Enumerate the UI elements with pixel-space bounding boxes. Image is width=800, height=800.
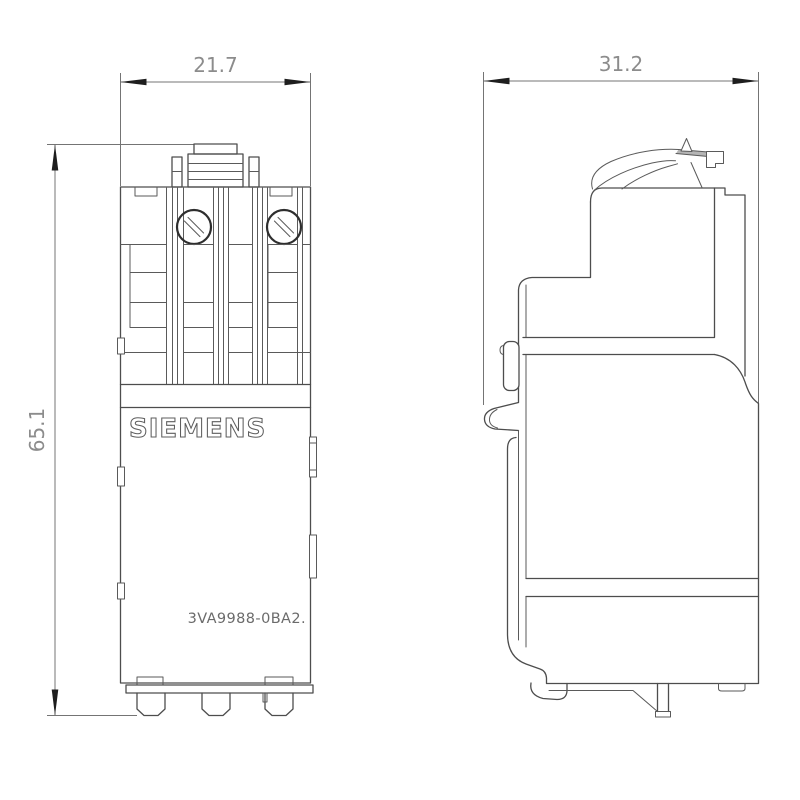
- lever-inner-curve-1: [594, 161, 676, 191]
- side-rear-notch: [719, 684, 746, 692]
- arrowhead-right: [285, 79, 311, 86]
- connector-block: [188, 154, 243, 187]
- arrowhead-right: [733, 78, 759, 85]
- dimension-label-height: 65.1: [25, 408, 49, 453]
- dimension-label-side-depth: 31.2: [599, 52, 644, 76]
- front-view: SIEMENS 3VA9988-0BA2.: [118, 144, 317, 716]
- lever-pointer-triangle: [681, 139, 692, 152]
- technical-drawing: 21.7 31.2 65.1: [0, 0, 800, 800]
- mounting-pins: [137, 693, 293, 716]
- arrowhead-left: [121, 79, 147, 86]
- side-view: [484, 139, 758, 718]
- arrowhead-bottom: [52, 690, 59, 716]
- din-clip: [500, 342, 519, 391]
- clip-body: [504, 342, 520, 391]
- terminal-screw-right: [267, 210, 301, 244]
- arrowhead-left: [484, 78, 510, 85]
- connector-slats: [188, 164, 243, 180]
- side-top-outline: [591, 188, 746, 376]
- side-bottom: [531, 683, 759, 717]
- dimension-side-depth: 31.2: [484, 52, 759, 683]
- side-band-lower: [526, 579, 759, 597]
- arrowhead-top: [52, 145, 59, 171]
- dimension-label-front-width: 21.7: [193, 53, 238, 77]
- extension-lines: [121, 73, 311, 186]
- terminal-bars: [167, 188, 303, 385]
- side-lower-front-face: [508, 438, 547, 684]
- side-pin: [658, 684, 669, 712]
- side-band-upper: [523, 338, 715, 355]
- side-foot: [531, 683, 567, 700]
- pin-right: [265, 693, 293, 716]
- side-pin-base: [656, 712, 671, 718]
- side-bottom-inner: [549, 691, 658, 712]
- trip-lever: [592, 139, 724, 191]
- pin-middle: [202, 693, 230, 716]
- terminal-grid: [121, 245, 311, 353]
- connector-top-plate: [194, 144, 237, 154]
- lever-end-block: [707, 152, 724, 168]
- siemens-logo-text: SIEMENS: [129, 414, 266, 444]
- dimension-front-width: 21.7: [121, 53, 311, 186]
- technical-drawing-page: 21.7 31.2 65.1: [0, 0, 800, 800]
- side-edge-tabs: [118, 338, 317, 599]
- screw-slot: [274, 217, 293, 236]
- part-number-text: 3VA9988-0BA2.: [188, 611, 306, 627]
- front-band-lines: [121, 385, 311, 408]
- side-rear-curve: [715, 355, 759, 684]
- screw-slot: [184, 217, 203, 236]
- side-front-step: [519, 278, 591, 403]
- release-tab: [484, 403, 518, 431]
- lever-right-edge: [691, 163, 702, 188]
- lever-inner-curve-2: [622, 164, 678, 189]
- pin-left: [137, 693, 165, 716]
- front-terminal-connector: [172, 144, 259, 187]
- lever-outer-curve: [592, 149, 679, 189]
- terminal-screw-left: [177, 210, 211, 244]
- mounting-plate: [126, 677, 313, 693]
